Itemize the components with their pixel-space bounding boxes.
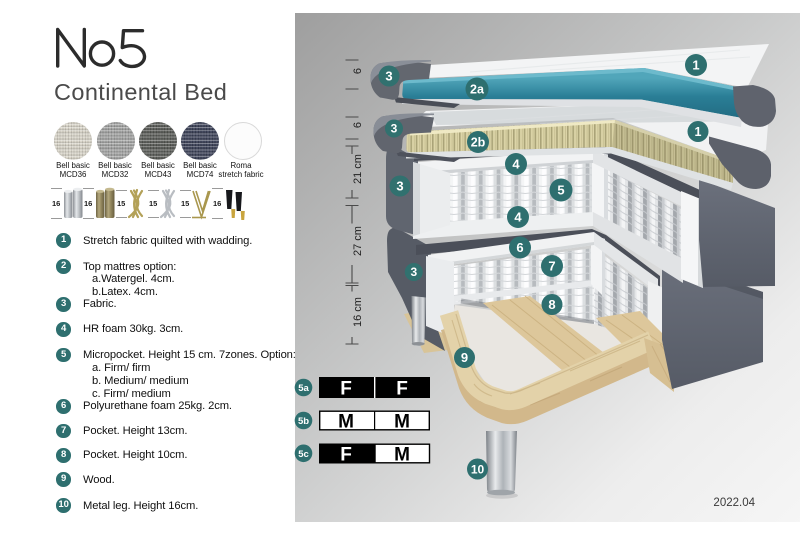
svg-text:2b: 2b (471, 136, 486, 150)
svg-text:2a: 2a (470, 83, 485, 97)
svg-text:3: 3 (410, 265, 417, 279)
svg-text:5: 5 (557, 183, 564, 198)
svg-text:6: 6 (352, 68, 364, 74)
svg-text:4: 4 (514, 210, 522, 225)
svg-text:5c: 5c (298, 449, 309, 460)
svg-text:9: 9 (461, 350, 468, 365)
svg-text:5b: 5b (298, 416, 309, 427)
svg-text:21 cm: 21 cm (352, 154, 364, 184)
svg-text:3: 3 (391, 122, 398, 136)
svg-text:10: 10 (471, 463, 485, 477)
svg-text:4: 4 (512, 157, 520, 172)
svg-text:2022.04: 2022.04 (713, 497, 755, 509)
svg-text:7: 7 (548, 259, 555, 274)
svg-text:5a: 5a (298, 383, 309, 394)
svg-text:27 cm: 27 cm (352, 226, 364, 256)
svg-text:F: F (340, 379, 352, 400)
svg-text:16 cm: 16 cm (352, 297, 364, 327)
svg-text:6: 6 (516, 240, 523, 255)
svg-text:3: 3 (385, 69, 392, 84)
svg-text:1: 1 (695, 125, 702, 139)
svg-text:F: F (340, 445, 352, 466)
svg-text:8: 8 (548, 297, 555, 312)
svg-text:3: 3 (396, 179, 403, 194)
svg-text:M: M (394, 412, 410, 433)
svg-text:F: F (396, 379, 408, 400)
svg-text:M: M (338, 412, 354, 433)
svg-text:M: M (394, 445, 410, 466)
svg-text:1: 1 (692, 58, 699, 73)
svg-text:6: 6 (352, 122, 364, 128)
